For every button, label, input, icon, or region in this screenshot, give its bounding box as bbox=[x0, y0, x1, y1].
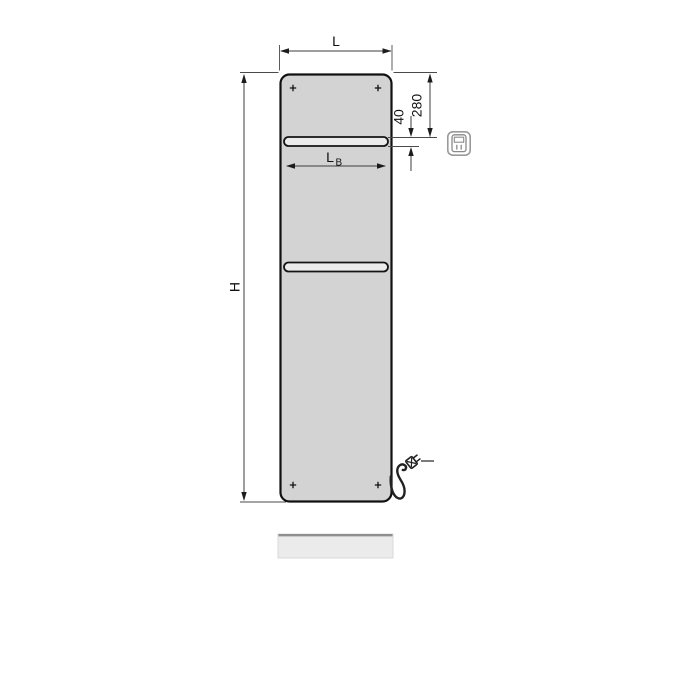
plug-prong bbox=[416, 459, 420, 462]
arrowhead-up bbox=[241, 74, 246, 83]
arrowhead-up bbox=[408, 147, 413, 156]
arrowhead-right bbox=[383, 48, 392, 53]
bar-width-label: L bbox=[326, 149, 334, 165]
power-plug-icon bbox=[405, 453, 422, 469]
bar-width-label-subscript: B bbox=[336, 158, 343, 169]
towel-bar-top bbox=[284, 137, 388, 146]
floor-shadow bbox=[278, 534, 393, 558]
arrowhead-up bbox=[427, 74, 432, 83]
offset-280-label: 280 bbox=[409, 94, 425, 118]
electric-control-unit-icon bbox=[448, 132, 470, 155]
gap-40-label: 40 bbox=[391, 109, 407, 125]
towel-bar-bottom bbox=[284, 263, 388, 272]
width-dimension: L bbox=[280, 33, 393, 71]
radiator-panel bbox=[281, 75, 392, 502]
height-label: H bbox=[227, 282, 243, 292]
power-cord bbox=[391, 464, 406, 498]
radiator-dimension-diagram: L H L B 280 bbox=[0, 0, 700, 700]
offset-280-dimension: 280 bbox=[388, 73, 437, 138]
arrowhead-down bbox=[408, 128, 413, 137]
arrowhead-left bbox=[280, 48, 289, 53]
gap-40-dimension: 40 bbox=[388, 109, 419, 171]
arrowhead-down bbox=[241, 492, 246, 501]
height-dimension: H bbox=[227, 73, 287, 503]
arrowhead-down bbox=[427, 128, 432, 137]
plug-prong bbox=[413, 455, 417, 458]
width-label: L bbox=[332, 33, 340, 49]
shadow-strip bbox=[278, 534, 393, 558]
power-connection bbox=[391, 453, 434, 499]
